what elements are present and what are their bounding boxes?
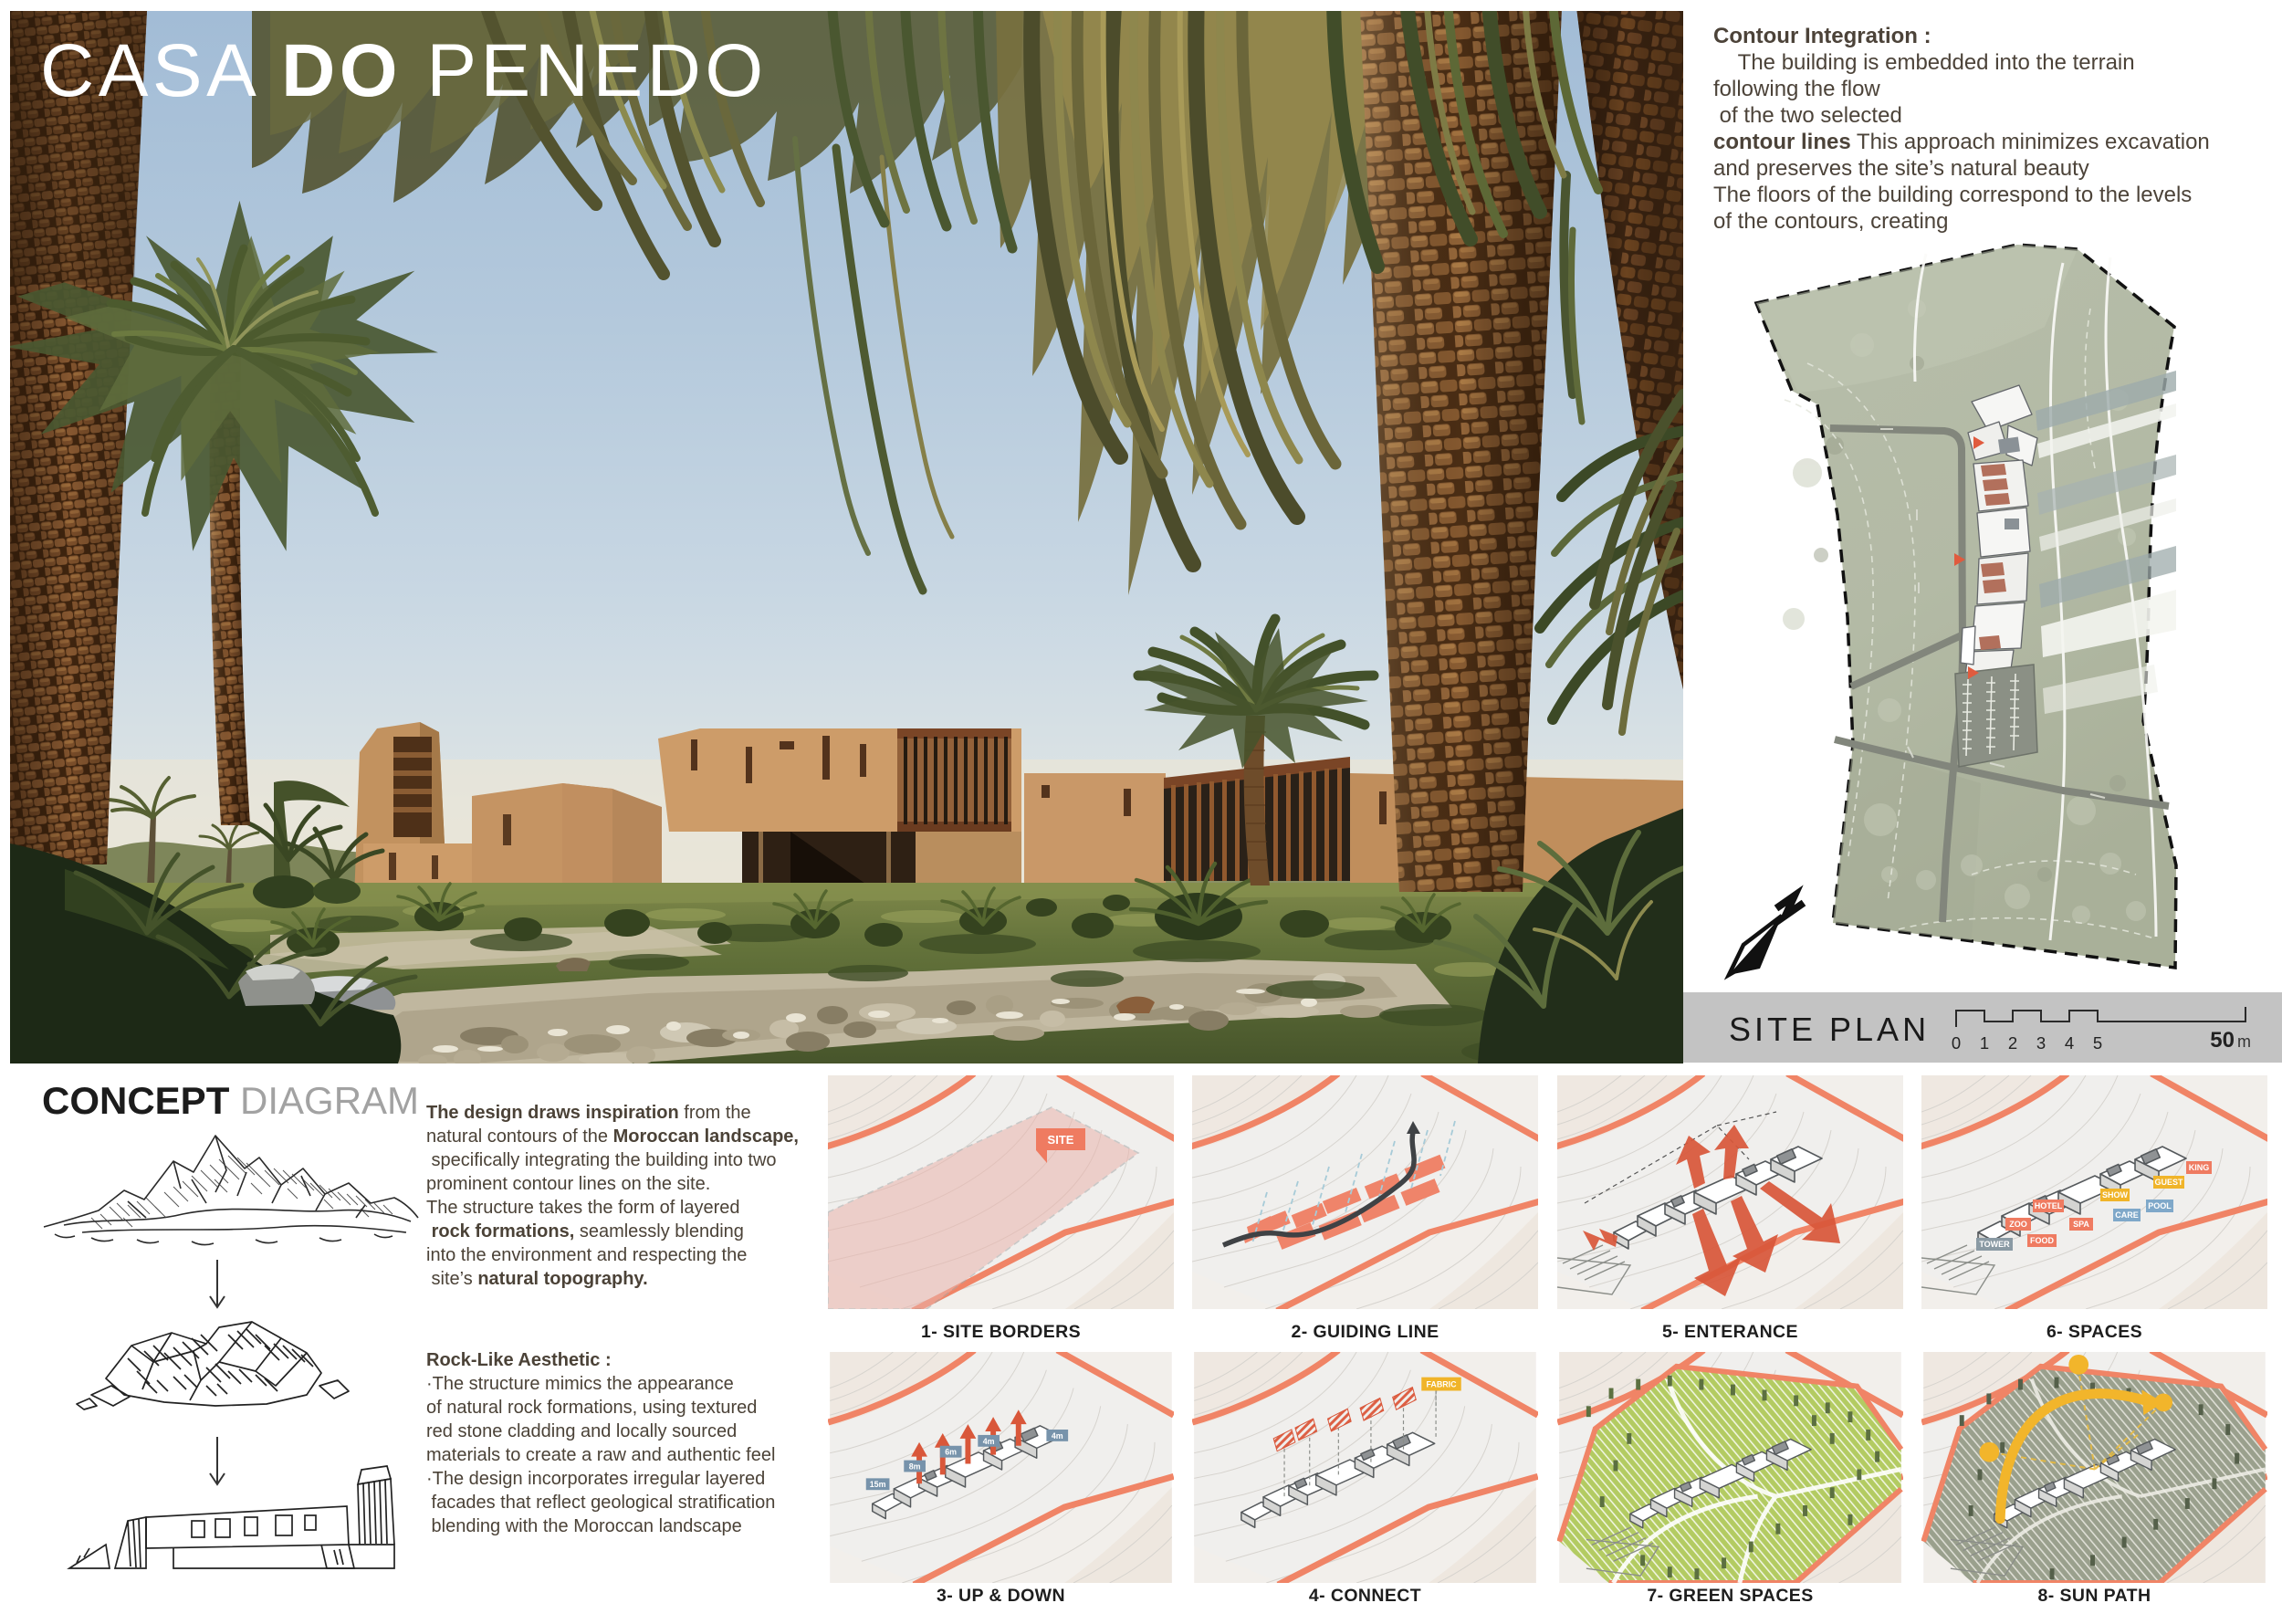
svg-text:4: 4 (2065, 1033, 2074, 1053)
svg-text:SPA: SPA (2073, 1220, 2089, 1229)
svg-text:15m: 15m (870, 1480, 886, 1489)
svg-text:1: 1 (1980, 1033, 1989, 1053)
svg-text:CARE: CARE (2115, 1210, 2139, 1220)
svg-text:m: m (2237, 1032, 2251, 1051)
svg-text:50: 50 (2210, 1028, 2235, 1053)
svg-text:FOOD: FOOD (2030, 1236, 2054, 1245)
svg-text:HOTEL: HOTEL (2035, 1201, 2063, 1210)
svg-text:6m: 6m (945, 1448, 957, 1457)
svg-text:3: 3 (2036, 1033, 2046, 1053)
svg-text:8m: 8m (909, 1462, 921, 1471)
svg-text:SITE: SITE (1048, 1133, 1074, 1147)
svg-text:GUEST: GUEST (2154, 1178, 2183, 1187)
svg-text:TOWER: TOWER (1979, 1240, 2010, 1249)
svg-text:POOL: POOL (2148, 1201, 2172, 1210)
svg-text:SHOW: SHOW (2102, 1190, 2129, 1200)
svg-text:FABRIC: FABRIC (1426, 1380, 1457, 1389)
svg-text:KING: KING (2189, 1163, 2210, 1172)
svg-text:0: 0 (1952, 1033, 1961, 1053)
svg-text:2: 2 (2008, 1033, 2017, 1053)
svg-text:ZOO: ZOO (2009, 1220, 2027, 1229)
svg-text:4m: 4m (1052, 1431, 1063, 1441)
svg-text:4m: 4m (983, 1437, 995, 1446)
svg-text:5: 5 (2093, 1033, 2102, 1053)
